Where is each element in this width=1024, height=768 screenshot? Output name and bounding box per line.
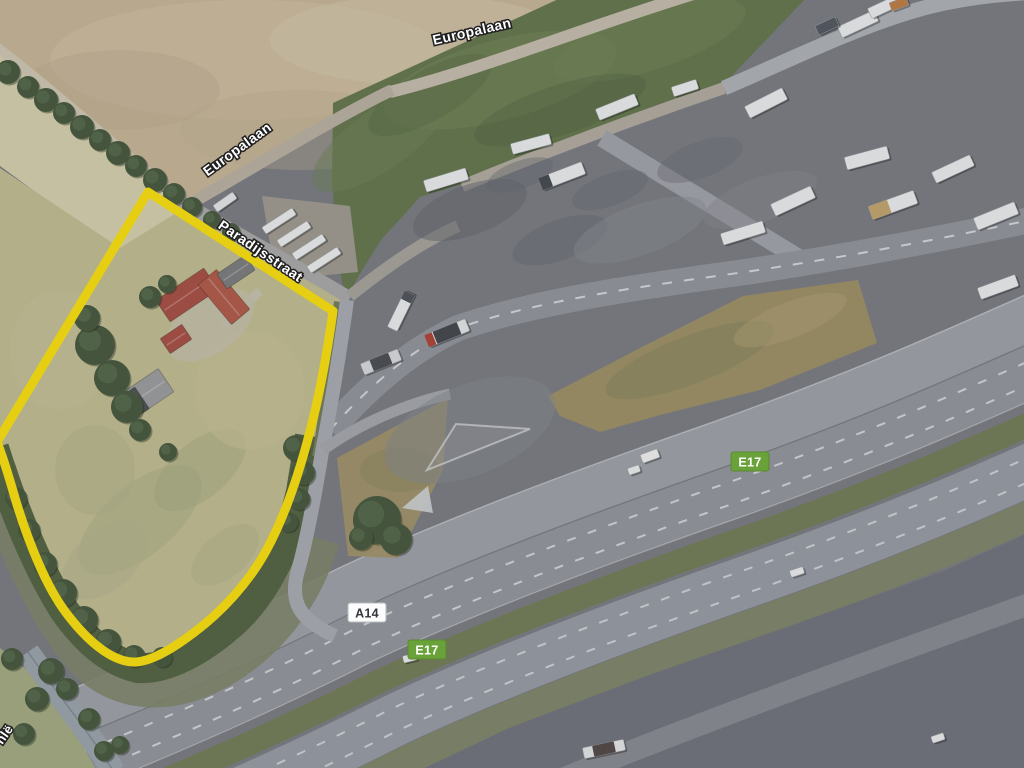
route-badge-a14: A14 (348, 603, 386, 622)
satellite-map-canvas: EuropalaanEuropalaanParadijsstraatnlëA14… (0, 0, 1024, 768)
satellite-map[interactable]: EuropalaanEuropalaanParadijsstraatnlëA14… (0, 0, 1024, 768)
svg-text:E17: E17 (738, 456, 761, 470)
route-badge-e17: E17 (408, 640, 446, 659)
grain-light (0, 0, 1024, 768)
route-badge-e17: E17 (731, 452, 769, 471)
svg-text:E17: E17 (415, 644, 438, 658)
svg-text:A14: A14 (355, 607, 379, 621)
